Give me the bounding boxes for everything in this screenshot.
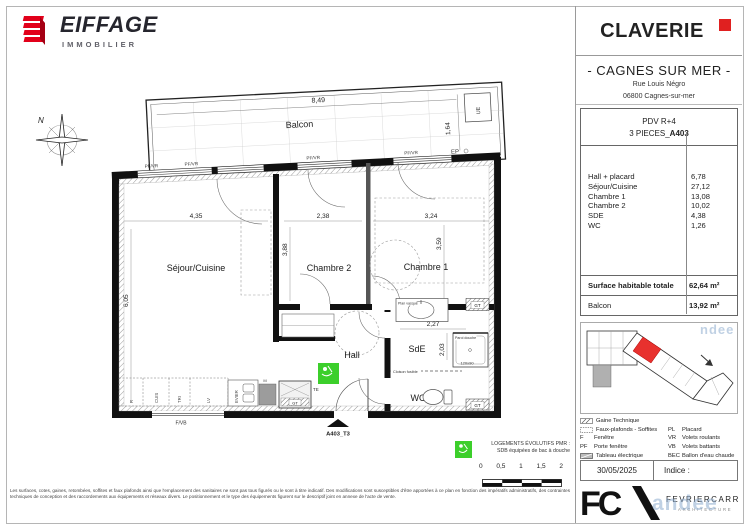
total-area-row: Surface habitable totale62,64 m² <box>581 275 737 295</box>
label-fusible-partition: Cloison fusible <box>393 370 418 374</box>
room-label-balcon: Balcon <box>285 119 313 130</box>
table-row: Séjour/Cuisine27,12 <box>581 182 737 192</box>
table-row: WC1,26 <box>581 221 737 231</box>
compass-north-label: N <box>38 116 44 125</box>
scale-labels: 00,511,52 <box>479 463 563 470</box>
address-box: - CAGNES SUR MER - Rue Louis Négro 06800… <box>576 56 742 105</box>
key-plan-arrow-icon <box>701 355 713 366</box>
unit-level: PDV R+4 <box>581 116 737 128</box>
dim-sde-height: 2,03 <box>439 343 446 356</box>
kitchen-label-fridge: R <box>129 400 134 403</box>
pmr-green-icon <box>455 441 472 458</box>
legal-disclaimer: Les surfaces, cotes, gaines, retombées, … <box>10 488 570 499</box>
kitchen-unit-gray <box>259 384 276 405</box>
label-gt-kitchen: GT <box>292 401 298 406</box>
label-gt-sde: GT <box>474 303 481 308</box>
unit-summary-box: PDV R+4 3 PIECES_A403 Hall + placard6,78… <box>580 108 738 316</box>
watermark-top: ndee <box>700 322 734 337</box>
legend-item: VBVolets battants <box>668 443 740 452</box>
label-te: TE <box>313 387 319 392</box>
pmr-line-1: LOGEMENTS ÉVOLUTIFS PMR : <box>476 441 570 448</box>
table-row: Chambre 113,08 <box>581 192 737 202</box>
label-vanity: Plan vasque <box>398 301 418 305</box>
kitchen-label-dishwasher: LV <box>206 398 211 403</box>
dim-sejour-width: 4,35 <box>190 213 203 220</box>
pmr-legend: LOGEMENTS ÉVOLUTIFS PMR : SDB équipées d… <box>455 441 570 458</box>
entrance-arrow <box>327 419 349 427</box>
project-title: CLAVERIE <box>576 20 728 43</box>
dim-ch1-width: 3,24 <box>425 213 438 220</box>
room-label-chambre2: Chambre 2 <box>307 263 352 273</box>
room-label-chambre1: Chambre 1 <box>404 262 449 272</box>
entrance-label: A403_T3 <box>326 432 351 438</box>
dim-sejour-height: 6,05 <box>123 294 130 307</box>
legend-item: Tableau électrique <box>580 451 672 460</box>
dim-ch2-width: 2,38 <box>317 213 330 220</box>
dim-ch1-height: 3,59 <box>436 237 443 250</box>
table-row: Hall + placard6,78 <box>581 172 737 182</box>
label-shower-size: 120x90 <box>460 361 474 366</box>
kitchen-label-m: M <box>263 378 266 383</box>
plan-sheet: EIFFAGE IMMOBILIER N <box>0 0 750 530</box>
kitchen-label-sink: EVIER <box>234 390 239 403</box>
window-label-pfvr-3: PF/VR <box>306 155 320 161</box>
room-label-sde: SdE <box>408 344 425 354</box>
key-plan-courtyard <box>593 365 611 387</box>
room-areas-table: Hall + placard6,78 Séjour/Cuisine27,12 C… <box>581 172 737 231</box>
legend-item: FFenêtre <box>580 434 672 443</box>
window-label-pfvr-1: PF/VR <box>145 163 159 169</box>
legend-item: BECBallon d'eau chaude <box>668 451 740 460</box>
revision-row: 30/05/2025 Indice : <box>580 460 738 481</box>
table-column-divider <box>686 132 687 314</box>
red-square-marker <box>719 19 731 31</box>
address-line-1: Rue Louis Négro <box>576 81 742 90</box>
pmr-line-2: SDB équipées de bac à douche <box>476 448 570 455</box>
compass-rose-icon: N <box>36 114 88 166</box>
balcony-group: 8,49 Balcon 1,64 UE EP PF/VR PF/VR P <box>108 82 506 184</box>
window-label-fvb: F/VB <box>175 421 187 427</box>
plan-date: 30/05/2025 <box>581 461 654 480</box>
dim-ch2-height: 3,88 <box>282 243 289 256</box>
project-title-box: CLAVERIE <box>576 6 742 56</box>
kitchen-label-tri: TRI <box>177 396 182 403</box>
bottom-window <box>152 411 224 418</box>
city-name: - CAGNES SUR MER - <box>576 63 742 78</box>
unit-header: PDV R+4 3 PIECES_A403 <box>581 109 737 146</box>
room-label-hall: Hall <box>344 350 360 360</box>
label-shower-screen: Paroi douche <box>455 336 476 340</box>
room-label-sejour: Séjour/Cuisine <box>167 263 226 273</box>
gaine-technique-icon <box>580 418 593 424</box>
legend-item: Gaine Technique <box>580 417 672 426</box>
label-ue: UE <box>476 106 482 114</box>
exterior-walls <box>112 157 501 418</box>
legend-item: PFPorte fenêtre <box>580 443 672 452</box>
watermark-bottom: andee <box>652 492 718 516</box>
faux-plafond-icon <box>580 427 593 433</box>
floor-plan: N 8,49 Balcon 1,64 UE EP <box>0 0 574 460</box>
window-label-pfvr-2: PF/VR <box>184 161 198 167</box>
dim-sde-width: 2,27 <box>427 321 440 328</box>
legend-item: Faux-plafonds - Soffites <box>580 426 672 435</box>
kitchen-sink <box>228 380 258 406</box>
pmr-marker <box>318 363 339 384</box>
label-gt-wc: GT <box>474 403 481 408</box>
table-row: Chambre 210,02 <box>581 201 737 211</box>
tableau-electrique-icon <box>580 453 593 459</box>
kitchen-counter <box>119 378 228 406</box>
window-label-pfvr-4: PF/VR <box>404 150 418 156</box>
dim-balcony-depth: 1,64 <box>445 122 453 135</box>
legend-item: VRVolets roulants <box>668 434 740 443</box>
table-row: SDE4,38 <box>581 211 737 221</box>
address-line-2: 06800 Cagnes-sur-mer <box>576 93 742 102</box>
dim-balcony-width: 8,49 <box>311 97 325 105</box>
hall-closet <box>282 314 334 337</box>
legend-item: PLPlacard <box>668 426 740 435</box>
toilet <box>423 390 452 405</box>
kitchen-label-cooker: CUIS <box>154 393 159 403</box>
entrance-door <box>327 379 368 427</box>
svg-text:FC: FC <box>580 485 622 522</box>
indice-label: Indice : <box>654 466 690 475</box>
balcony-area-row: Balcon13,92 m² <box>581 295 737 315</box>
unit-type: 3 PIECES_A403 <box>581 128 737 140</box>
